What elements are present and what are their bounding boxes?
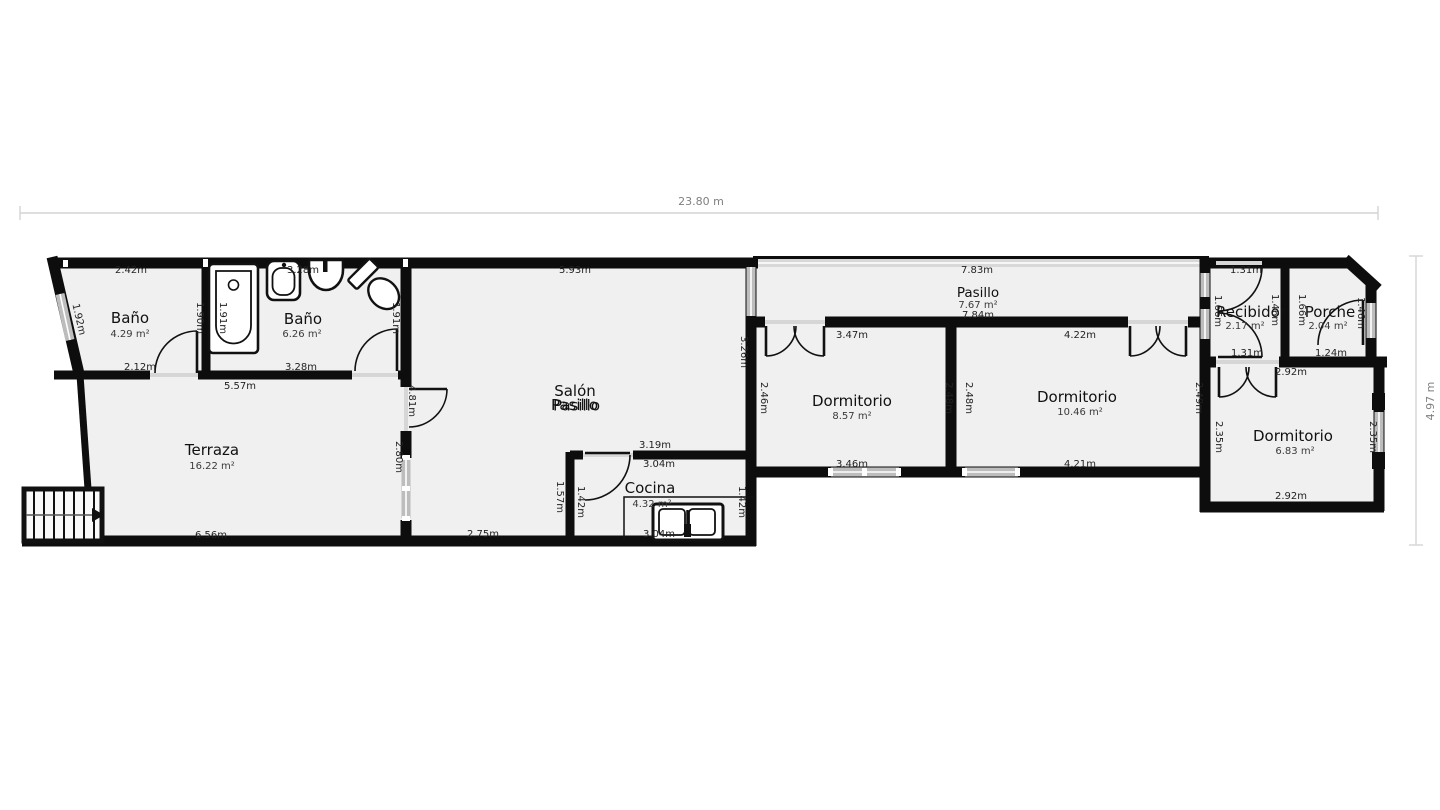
dim-salon-window-left: 2.80m bbox=[393, 441, 404, 473]
room-label-dorm1: Dormitorio bbox=[812, 392, 892, 410]
overall-width-label: 23.80 m bbox=[678, 195, 724, 208]
dim-dorm2-left: 2.48m bbox=[963, 382, 974, 414]
room-label-pasillo: Pasillo bbox=[957, 285, 999, 301]
dim-salon-door-left: 4.81m bbox=[406, 385, 417, 417]
room-label-bano1: Baño bbox=[111, 309, 149, 327]
dim-salon-top: 5.93m bbox=[559, 265, 591, 276]
dim-recibidor-top: 1.31m bbox=[1230, 265, 1262, 276]
area-label-porche: 2.04 m² bbox=[1308, 321, 1347, 332]
stairs bbox=[24, 489, 104, 541]
dim-cocina-bottom: 3.04m bbox=[643, 529, 675, 540]
dim-terraza-bottom: 6.56m bbox=[195, 530, 227, 541]
dim-pasillo-top: 7.83m bbox=[961, 265, 993, 276]
dim-cocina-top-in: 3.04m bbox=[643, 459, 675, 470]
dim-recibidor-right: 1.46m bbox=[1269, 294, 1280, 326]
dim-dorm3-right: 2.35m bbox=[1367, 421, 1378, 453]
dim-dorm1-bottom: 3.46m bbox=[836, 459, 868, 470]
dim-salon-right: 3.26m bbox=[738, 336, 749, 368]
dim-dorm3-bottom: 2.92m bbox=[1275, 491, 1307, 502]
room-label-salon-overlay2: Pasillo bbox=[553, 397, 600, 415]
dim-dorm3-left: 2.35m bbox=[1213, 421, 1224, 453]
dim-pasillo-bottom: 7.84m bbox=[962, 310, 994, 321]
dim-cocina-left-out: 1.57m bbox=[554, 481, 565, 513]
dim-cocina-right: 1.42m bbox=[736, 486, 747, 518]
dim-porche-bottom: 1.24m bbox=[1315, 348, 1347, 359]
dim-dorm2-top: 4.22m bbox=[1064, 330, 1096, 341]
dim-bano1-right: 1.90m bbox=[194, 302, 205, 334]
area-label-dorm1: 8.57 m² bbox=[832, 411, 871, 422]
room-label-bano2: Baño bbox=[284, 310, 322, 328]
dim-cocina-left-in: 1.42m bbox=[575, 486, 586, 518]
area-label-bano2: 6.26 m² bbox=[282, 329, 321, 340]
area-label-terraza: 16.22 m² bbox=[189, 461, 235, 472]
area-label-bano1: 4.29 m² bbox=[110, 329, 149, 340]
dim-salon-bottom: 2.75m bbox=[467, 529, 499, 540]
room-label-porche: Porche bbox=[1305, 303, 1356, 321]
dim-bano2-bottom: 3.28m bbox=[285, 362, 317, 373]
dim-bano2-right: 1.91m bbox=[390, 302, 401, 334]
dim-dorm1-right: 2.48m bbox=[943, 382, 954, 414]
floor-plan-svg: 23.80 m 4.97 m 2.42m 1.92m 1.90m Baño 4.… bbox=[0, 0, 1440, 810]
room-label-dorm2: Dormitorio bbox=[1037, 388, 1117, 406]
dim-dorm1-top: 3.47m bbox=[836, 330, 868, 341]
room-label-terraza: Terraza bbox=[184, 441, 239, 459]
dim-bano2-left: 1.91m bbox=[217, 302, 228, 334]
room-label-dorm3: Dormitorio bbox=[1253, 427, 1333, 445]
bathtub-icon bbox=[209, 264, 258, 353]
area-label-dorm2: 10.46 m² bbox=[1057, 407, 1103, 418]
room-label-cocina: Cocina bbox=[625, 479, 676, 497]
dim-dorm2-right: 2.49m bbox=[1193, 382, 1204, 414]
overall-height-label: 4.97 m bbox=[1424, 382, 1437, 421]
dim-dorm2-bottom: 4.21m bbox=[1064, 459, 1096, 470]
area-label-dorm3: 6.83 m² bbox=[1275, 446, 1314, 457]
area-label-cocina: 4.32 m² bbox=[632, 499, 671, 510]
dim-recibidor-bottom: 1.31m bbox=[1231, 348, 1263, 359]
dim-bano2-top: 3.28m bbox=[287, 265, 319, 276]
area-label-recibidor: 2.17 m² bbox=[1225, 321, 1264, 332]
dim-dorm3-top: 2.92m bbox=[1275, 367, 1307, 378]
dim-bano1-bottom: 2.12m bbox=[124, 362, 156, 373]
dim-banos-bottom: 5.57m bbox=[224, 381, 256, 392]
dim-porche-right: 1.46m bbox=[1355, 297, 1366, 329]
window-dorm2-bottom bbox=[962, 468, 1020, 476]
dim-cocina-top-out: 3.19m bbox=[639, 440, 671, 451]
dim-bano1-top: 2.42m bbox=[115, 265, 147, 276]
dim-dorm1-left: 2.46m bbox=[758, 382, 769, 414]
